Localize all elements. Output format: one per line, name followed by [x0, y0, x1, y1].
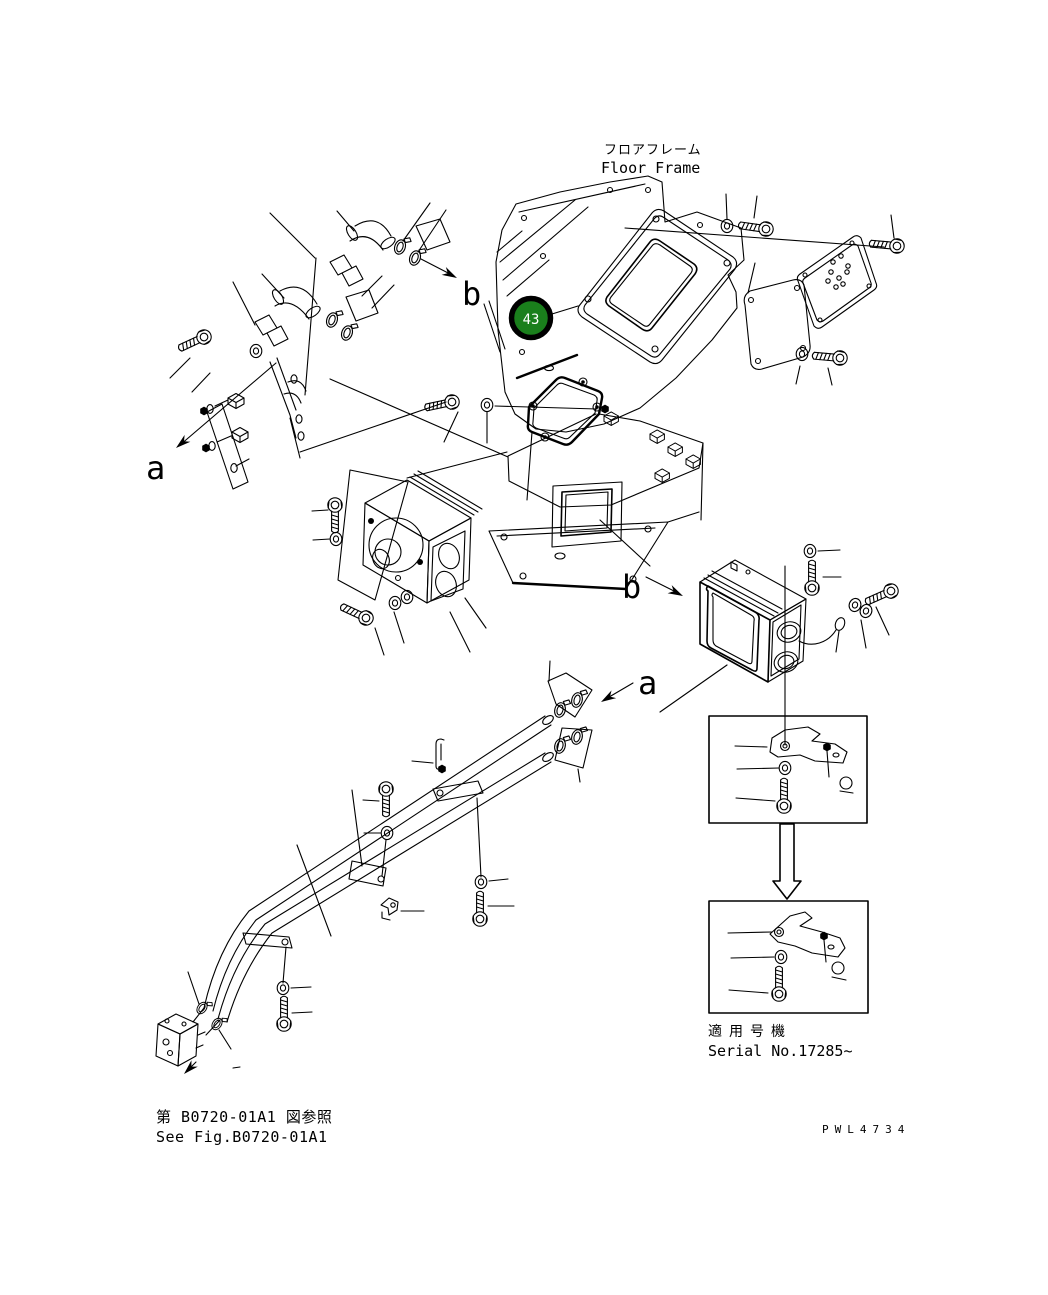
- arrowhead-icon: [442, 267, 459, 282]
- washer-icon: [804, 544, 816, 557]
- bolt-icon: [176, 327, 214, 355]
- nut-block: [668, 443, 682, 457]
- title-japanese: フロアフレーム: [604, 143, 702, 158]
- valve-block: [156, 972, 240, 1077]
- bolt-icon: [777, 778, 791, 813]
- heater-unit: [312, 452, 507, 655]
- arrowhead-icon: [173, 435, 190, 452]
- hose-clamp-icon: [570, 687, 588, 709]
- bolt-icon: [772, 966, 786, 1001]
- view-label-b-lower: b: [622, 568, 641, 606]
- view-label-a-upper: a: [146, 449, 165, 487]
- down-block-arrow: [773, 824, 801, 899]
- bolt-icon: [738, 218, 775, 237]
- heater-hoses: [233, 203, 450, 395]
- arrowhead-icon: [599, 690, 616, 705]
- frame-top-fasteners: [721, 194, 848, 385]
- washer-icon: [330, 532, 342, 545]
- bolt-icon: [423, 393, 460, 414]
- hose-clamp-icon: [393, 234, 413, 257]
- nut-block: [686, 455, 700, 469]
- exploded-parts-diagram: b a 43: [0, 0, 1048, 1295]
- duct-mount-bracket: [300, 377, 703, 589]
- bolt-icon: [338, 600, 376, 628]
- parts-diagram-page: b a 43: [0, 0, 1048, 1295]
- bolt-icon: [328, 498, 342, 533]
- heater-pipes-assembly: [156, 661, 592, 1077]
- mounting-bracket-inset-current: [709, 716, 867, 823]
- water-valve-assembly: [170, 327, 306, 489]
- view-label-a-lower: a: [638, 664, 657, 702]
- nut-block: [650, 430, 664, 444]
- bolt-icon: [863, 581, 901, 608]
- bolt-icon: [473, 891, 487, 926]
- hose-clamp-icon: [570, 724, 588, 746]
- washer-icon: [389, 596, 401, 609]
- view-arrow-b-upper: b: [421, 259, 481, 313]
- hose-clamp-icon: [325, 307, 345, 330]
- cover-plate: [744, 263, 810, 369]
- air-conditioner-unit: [660, 544, 901, 745]
- bolt-icon: [812, 348, 848, 365]
- reference-japanese: 第 B0720-01A1 図参照: [156, 1108, 332, 1126]
- view-label-b-upper: b: [462, 275, 481, 313]
- title-english: Floor Frame: [601, 159, 700, 177]
- callout-number: 43: [523, 312, 540, 328]
- bolt-icon: [379, 782, 393, 817]
- valve-body: [228, 394, 244, 409]
- washer-icon: [721, 219, 733, 232]
- arrowhead-icon: [668, 585, 685, 600]
- washer-icon: [796, 347, 808, 360]
- drawing-code-watermark: PWL4734: [822, 1123, 910, 1136]
- reference-english: See Fig.B0720-01A1: [156, 1128, 328, 1146]
- washer-icon: [481, 398, 493, 411]
- hose-clamp-icon: [553, 733, 571, 755]
- hose-clamp-icon: [340, 320, 360, 343]
- nut-block: [655, 469, 669, 483]
- serial-note-japanese: 適用号機: [708, 1023, 792, 1040]
- bolt-icon: [277, 996, 291, 1031]
- view-arrow-a-lower: a: [599, 664, 658, 706]
- callout-badge-43: 43: [512, 299, 579, 338]
- washer-icon: [250, 344, 262, 357]
- washer-icon: [775, 950, 787, 963]
- view-arrow-b-lower: b: [622, 568, 685, 606]
- mounting-bracket-inset-serial: [709, 901, 868, 1013]
- bolt-icon: [805, 560, 819, 595]
- bolt-icon: [869, 236, 905, 253]
- perforated-plate: [797, 215, 904, 328]
- washer-icon: [401, 590, 413, 603]
- washer-icon: [779, 761, 791, 774]
- serial-note-english: Serial No.17285~: [708, 1042, 853, 1060]
- hose-clamp-icon: [408, 245, 428, 268]
